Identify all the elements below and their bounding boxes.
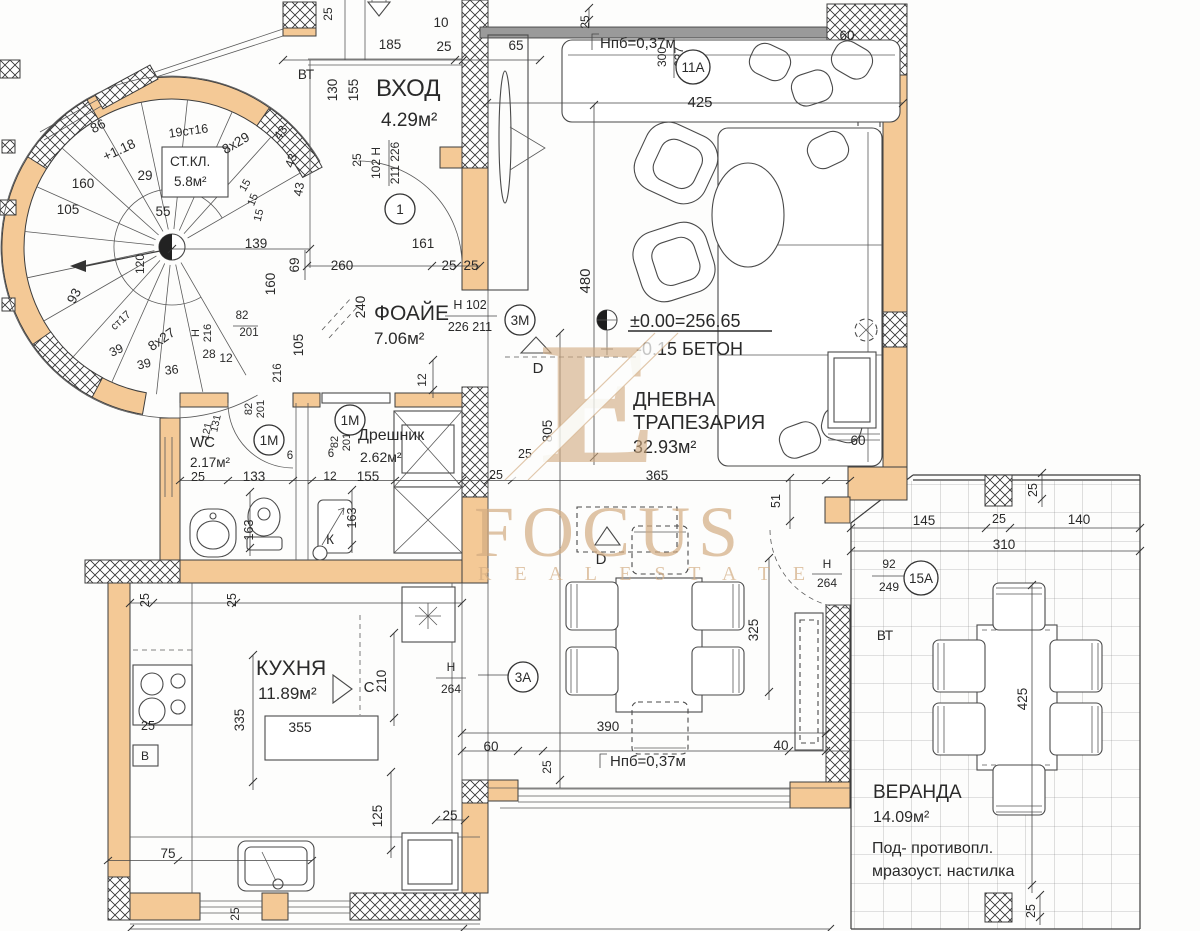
dimension-label: 25 [225,593,239,607]
dimension-label: 75 [160,846,175,861]
dimension-label: 60 [839,28,854,43]
tag-11А: 11А [676,50,710,84]
svg-text:1: 1 [396,202,404,217]
dimension-label: 425 [1015,688,1030,711]
room-name-kitchen: КУХНЯ [256,657,326,680]
dimension-label: 55 [155,204,170,219]
dimension-label: 40 [773,738,788,753]
dimension-label: 25 [442,808,457,823]
watermark-tagline: R E A L E S T A T E [478,563,814,585]
dimension-label: Н [823,557,832,571]
dimension-label: 36 [164,362,179,377]
dimension-label: 155 [346,79,361,102]
svg-text:3А: 3А [515,670,532,685]
dimension-label: 216 [202,324,214,342]
dimension-label: 25 [138,593,152,607]
tag-3М: 3М [505,305,535,335]
dimension-label: 210 [374,670,389,693]
tag-1: 1 [385,194,415,224]
dimension-label: 69 [287,257,302,272]
dimension-label: 163 [345,508,359,529]
veranda-note-2: мразоуст. настилка [872,863,1014,880]
svg-text:15А: 15А [909,571,933,586]
dimension-label: 139 [245,236,268,251]
dimension-label: 25 [350,153,364,167]
dimension-label: 12 [219,351,233,365]
room-area-stkl: 5.8м² [174,174,207,189]
cabinet [828,352,876,428]
appliance [402,833,458,890]
dimension-label: 25 [441,258,456,273]
dimension-label: 25 [191,470,205,484]
room-area-wc: 2.17м² [190,455,231,470]
veranda-column [985,893,1012,922]
dimension-label: Н [447,660,456,674]
dimension-label: 82 [243,403,255,415]
dimension-label: 130 [325,79,340,102]
dimension-label: 29 [137,168,152,183]
watermark-brand: FOCUS [474,492,746,572]
veranda-note-1: Под- противопл. [872,840,993,857]
dining-table [616,578,702,712]
coffee-table [712,163,784,267]
dimension-label: 160 [72,176,95,191]
svg-text:1М: 1М [260,433,279,448]
dimension-label: 161 [412,236,435,251]
dimension-label: 163 [242,520,256,541]
dimension-label: 105 [291,334,306,357]
dimension-label: 65 [508,38,523,53]
dimension-label: 25 [578,15,592,29]
dimension-label: 155 [357,469,380,484]
dimension-label: 480 [577,268,594,293]
svg-text:1М: 1М [341,413,360,428]
room-name-dreshnik: Дрешник [358,427,425,444]
dimension-label: 145 [913,513,936,528]
dimension-label: 12 [323,469,337,483]
dimension-label: 201 [239,327,258,339]
dimension-label: 25 [141,719,155,733]
dimension-label: 425 [687,94,712,111]
room-area-kitchen: 11.89м² [258,684,317,703]
dreshnik-door [322,393,390,403]
dimension-label: В [141,749,149,763]
floor-plan-drawing: ВХОД 4.29м² СТ.КЛ. 5.8м² ФОАЙЕ 7.06м² WC… [0,0,1200,931]
dimension-label: 82 [329,436,341,448]
dimension-label: 260 [331,258,354,273]
dimension-label: 211 226 [388,141,402,184]
dimension-label: Н 102 [453,298,486,312]
dimension-label: 25 [228,907,242,921]
room-name-veranda: ВЕРАНДА [873,782,962,803]
sofa-top [562,40,900,122]
tag-3А: 3А [508,662,538,692]
floor-plan-page: ВХОД 4.29м² СТ.КЛ. 5.8м² ФОАЙЕ 7.06м² WC… [0,0,1200,931]
dimension-label: 120 [133,254,147,274]
dimension-label: 25 [992,512,1006,526]
dimension-label: 160 [263,273,278,296]
room-area-dreshnik: 2.62м² [360,449,402,465]
dimension-label: 264 [817,576,837,590]
dimension-label: 133 [243,469,266,484]
dimension-label: 43 [291,181,307,197]
dimension-label: 25 [436,39,451,54]
room-area-veranda: 14.09м² [873,809,930,826]
dimension-label: 249 [879,580,899,594]
room-name-vhod: ВХОД [376,75,441,102]
dimension-label: Н [190,329,202,337]
dimension-label: 185 [379,37,402,52]
dimension-label: С [364,679,375,696]
dimension-label: 25 [321,7,335,21]
dimension-label: 226 211 [448,320,492,334]
dimension-label: 51 [769,494,783,508]
dimension-label: 6 [287,450,293,462]
dimension-label: 102 Н [369,147,383,179]
dimension-label: 125 [370,805,385,828]
flue-box [402,587,455,642]
dimension-label: 25 [489,468,503,482]
dimension-label: К [326,532,334,547]
dimension-label: 60 [850,433,865,448]
kitchen-sink [238,841,314,891]
dimension-label: 92 [882,557,896,571]
dimension-label: 60 [483,739,498,754]
dimension-label: 25 [1026,483,1040,497]
dimension-label: 216 [272,363,284,382]
dimension-label: 12 [415,373,429,387]
kitchen-island [265,716,378,760]
parapet-label-bottom: Нпб=0,37м [610,753,686,770]
dimension-label: 28 [202,347,216,361]
dimension-label: 300 [655,47,669,67]
dimension-label: 140 [1068,512,1091,527]
room-area-vhod: 4.29м² [381,110,437,131]
dimension-label: ВТ [298,67,314,82]
veranda-column [985,475,1012,506]
dimension-label: 25 [463,258,478,273]
tag-1М: 1М [254,425,284,455]
dimension-label: 240 [353,296,368,319]
room-area-foyer: 7.06м² [374,329,425,348]
dimension-label: 105 [57,202,80,217]
dimension-label: ВТ [877,628,893,643]
room-name-foyer: ФОАЙЕ [374,301,449,325]
tag-15А: 15А [904,561,938,595]
dimension-label: 355 [288,719,312,735]
dimension-label: 390 [597,719,620,734]
dimension-label: 325 [746,619,761,642]
dimension-label: 10 [433,15,448,30]
dimension-label: 25 [1024,904,1038,918]
svg-text:11А: 11А [681,60,704,75]
dimension-label: 201 [255,400,267,418]
dimension-label: 82 [236,310,249,322]
svg-text:3М: 3М [511,313,530,328]
dimension-label: 310 [993,537,1016,552]
dimension-label: 264 [441,682,461,696]
dimension-label: 25 [540,760,554,774]
cooktop [133,665,192,725]
tag-1М: 1М [335,405,365,435]
dimension-label: 6 [328,448,334,460]
room-name-stkl: СТ.КЛ. [170,154,210,169]
dimension-label: 335 [232,709,247,732]
